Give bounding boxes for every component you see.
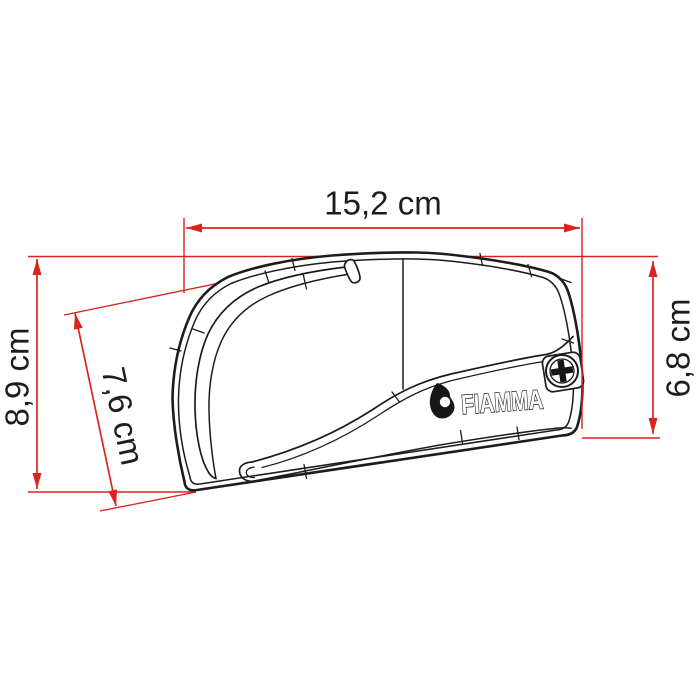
case-outer-outline bbox=[173, 252, 583, 490]
arrow-down-icon bbox=[33, 473, 42, 489]
arrow-right-icon bbox=[564, 224, 580, 233]
arrow-up-right-icon bbox=[649, 261, 658, 277]
diagram-drawing: FIAMMA bbox=[0, 0, 700, 700]
arrow-up-icon bbox=[33, 259, 42, 275]
arrow-left-icon bbox=[186, 224, 202, 233]
dimension-diagram: FIAMMA 15,2 cm 8,9 cm 7,6 cm 6,8 cm bbox=[0, 0, 700, 700]
arrow-slant-bottom-icon bbox=[108, 489, 117, 506]
dimension-label-right-height: 6,8 cm bbox=[662, 298, 695, 397]
dimension-label-left-height: 8,9 cm bbox=[1, 327, 34, 426]
fiamma-teardrop-dot bbox=[440, 397, 450, 407]
arrow-down-right-icon bbox=[649, 418, 658, 434]
dimension-label-top-width: 15,2 cm bbox=[324, 187, 441, 220]
arrow-slant-top-icon bbox=[74, 313, 83, 330]
screw-mount bbox=[541, 351, 584, 393]
awning-case-drawing: FIAMMA bbox=[170, 252, 585, 490]
fiamma-logo-text: FIAMMA bbox=[460, 384, 544, 420]
